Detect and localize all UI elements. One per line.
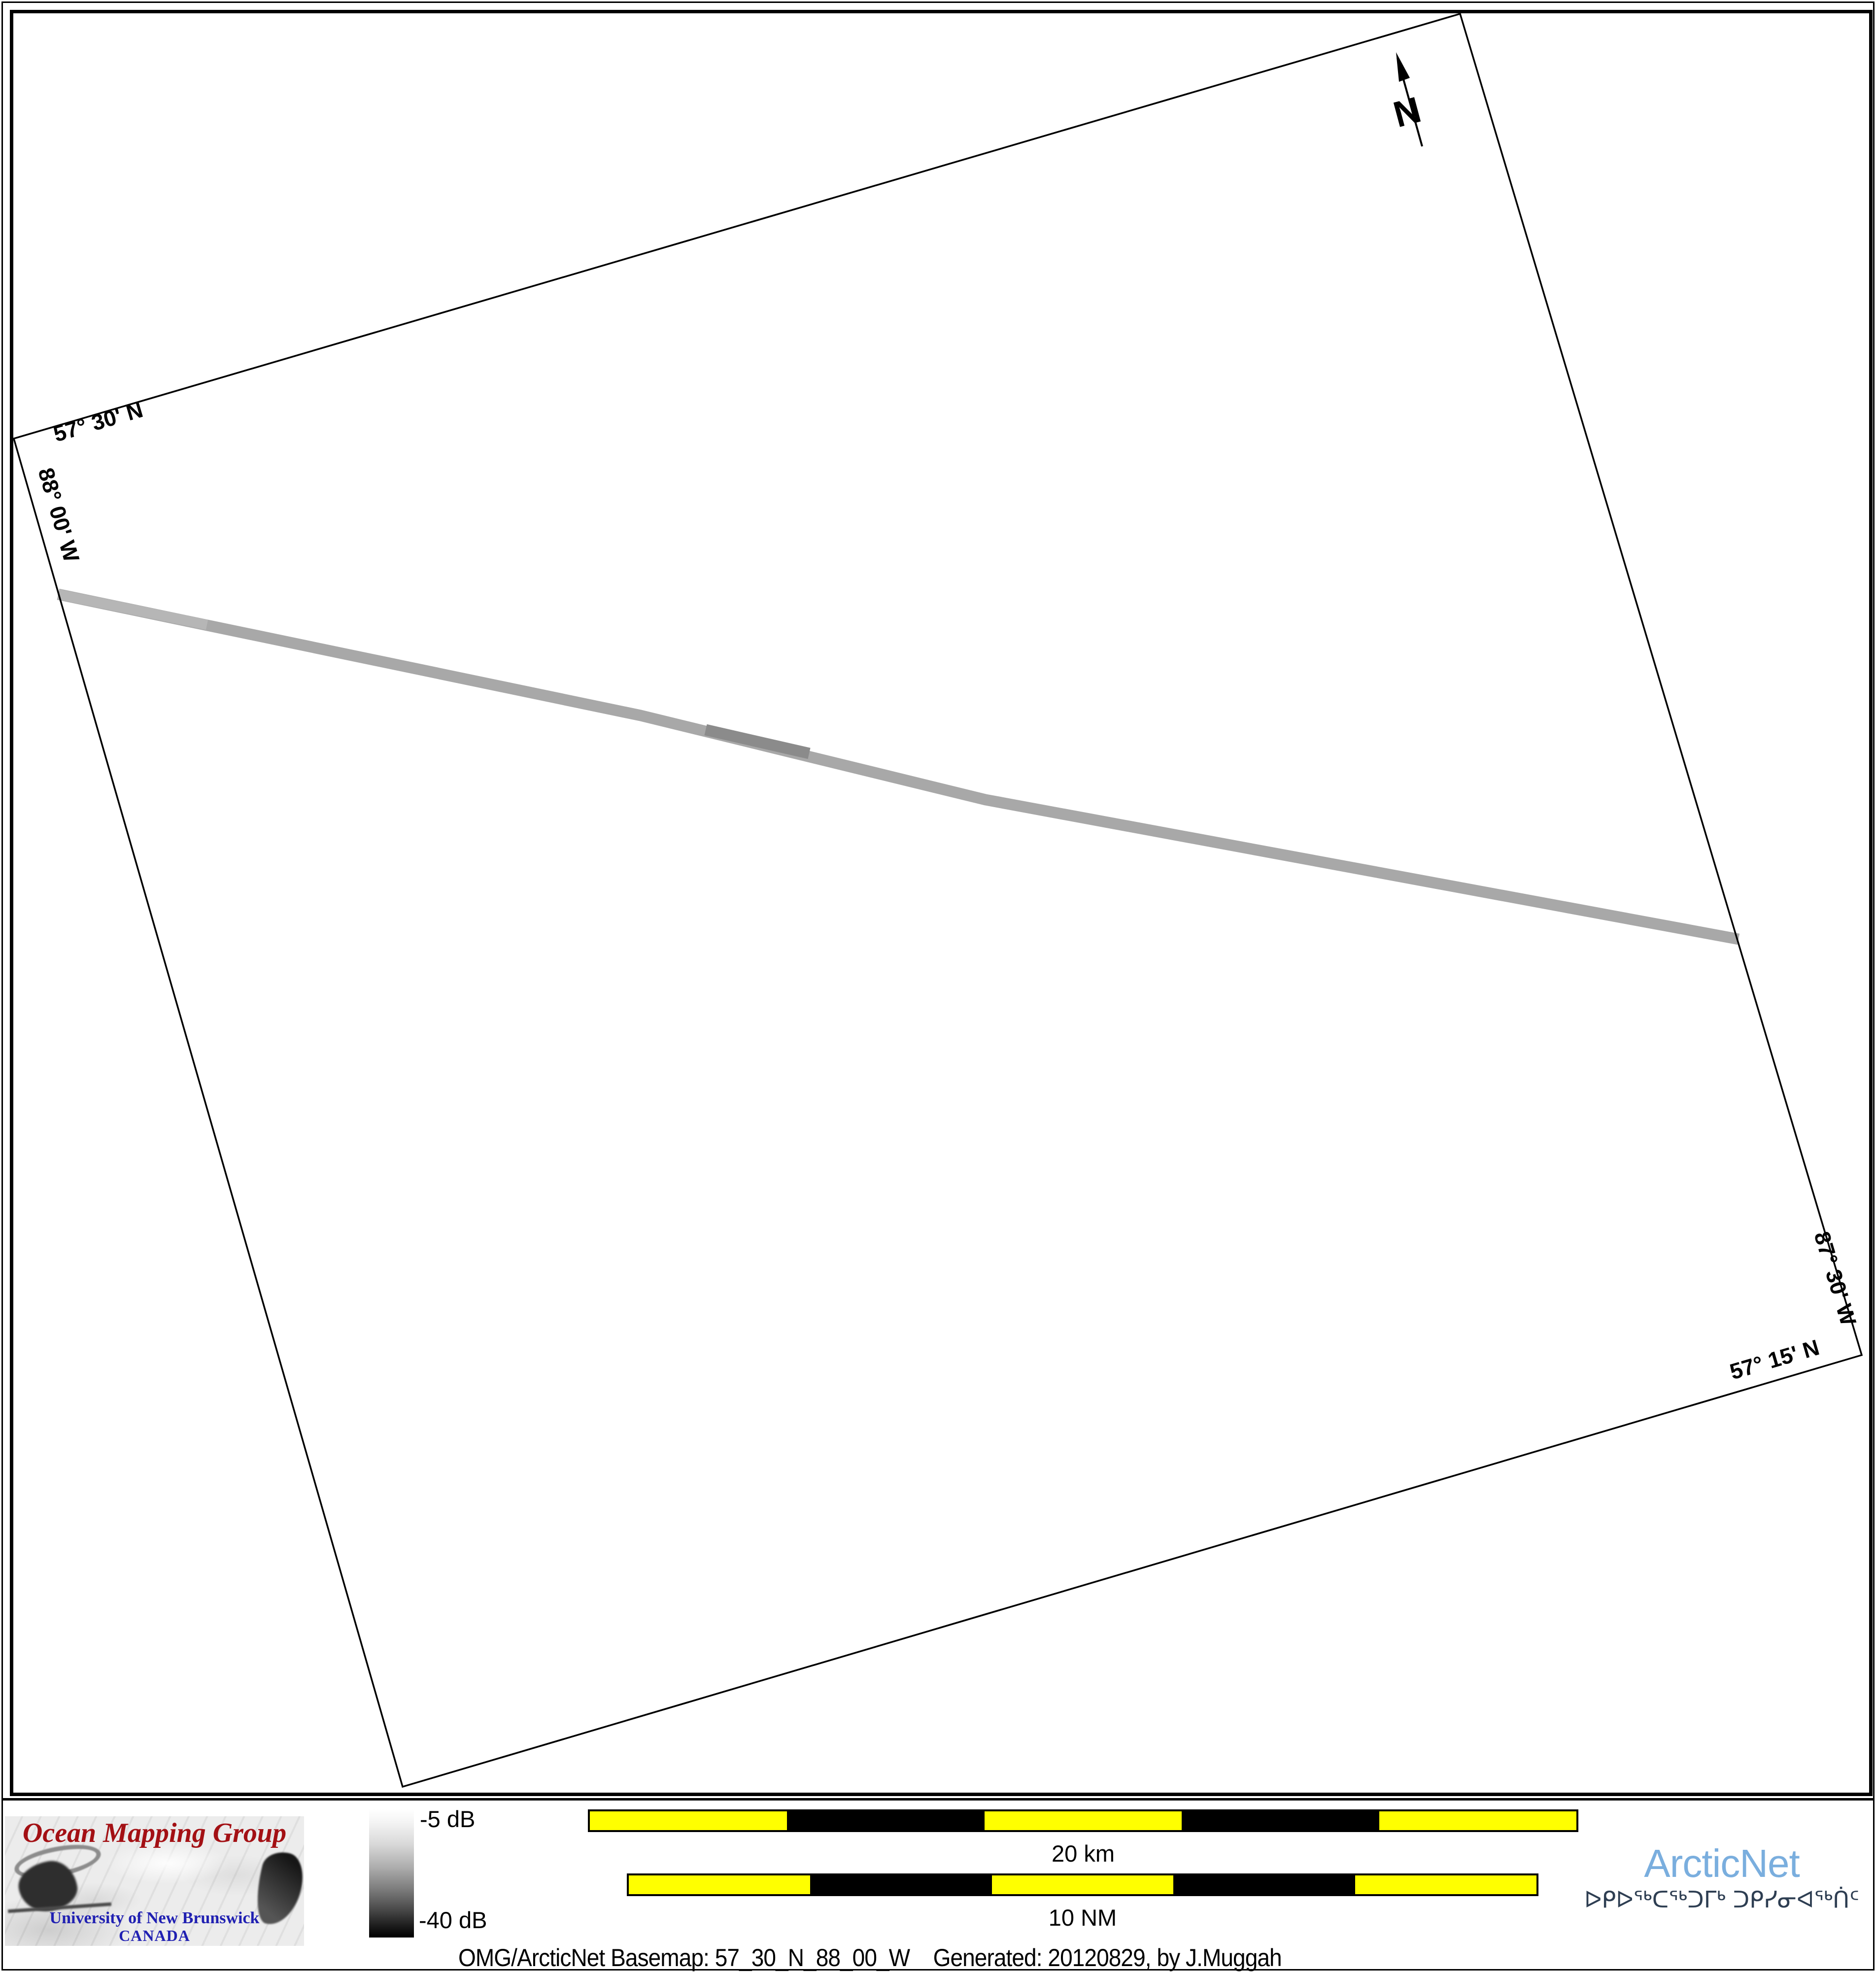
arcticnet-name: ArcticNet — [1576, 1844, 1868, 1883]
colorbar-max-label: -5 dB — [420, 1805, 475, 1833]
basemap-page: N 57° 30' N 88° 00' W 87° 30' W 57° 15' … — [0, 0, 1876, 1972]
graticule-neatline — [14, 14, 1862, 1787]
omg-title: Ocean Mapping Group — [5, 1817, 304, 1849]
north-arrow-label: N — [1389, 89, 1425, 135]
footer-divider — [2, 1798, 1874, 1801]
scalebar-segment — [629, 1875, 810, 1894]
backscatter-colorbar — [369, 1809, 414, 1938]
basemap-caption: OMG/ArcticNet Basemap: 57_30_N_88_00_W G… — [458, 1943, 1282, 1972]
scalebar-segment — [1355, 1875, 1536, 1894]
sonar-swath-dark-patch — [706, 730, 809, 753]
omg-university-label: University of New Brunswick — [5, 1909, 304, 1928]
north-arrow-icon: N — [1389, 52, 1425, 146]
arcticnet-logo: ArcticNet ᐅᑭᐅᖅᑕᖅᑐᒥᒃ ᑐᑭᓯᓂᐊᖅᑏᑦ — [1576, 1844, 1868, 1911]
scalebar-segment — [1182, 1811, 1379, 1830]
latitude-label-bottom: 57° 15' N — [1727, 1334, 1822, 1384]
arcticnet-inuktitut-label: ᐅᑭᐅᖅᑕᖅᑐᒥᒃ ᑐᑭᓯᓂᐊᖅᑏᑦ — [1576, 1888, 1868, 1911]
sonar-swath — [58, 594, 1739, 939]
scalebar-segment — [985, 1811, 1182, 1830]
longitude-label-right: 87° 30' W — [1809, 1228, 1861, 1328]
scalebar-segment — [810, 1875, 991, 1894]
longitude-label-left: 88° 00' W — [33, 465, 84, 565]
omg-logo: Ocean Mapping Group University of New Br… — [5, 1816, 304, 1946]
scalebar-segment — [992, 1875, 1173, 1894]
scalebar-km — [588, 1809, 1578, 1832]
latitude-label-top: 57° 30' N — [50, 397, 145, 446]
sonar-swath-light-patch — [58, 594, 207, 625]
scalebar-segment — [1379, 1811, 1576, 1830]
scalebar-nm — [627, 1873, 1538, 1896]
colorbar-min-label: -40 dB — [419, 1906, 487, 1934]
scalebar-km-label: 20 km — [588, 1840, 1578, 1867]
map-canvas: N 57° 30' N 88° 00' W 87° 30' W 57° 15' … — [0, 0, 1876, 1972]
omg-country-label: CANADA — [5, 1927, 304, 1945]
scalebar-segment — [1173, 1875, 1355, 1894]
scalebar-segment — [590, 1811, 787, 1830]
scalebar-segment — [787, 1811, 984, 1830]
scalebar-nm-label: 10 NM — [627, 1904, 1538, 1931]
